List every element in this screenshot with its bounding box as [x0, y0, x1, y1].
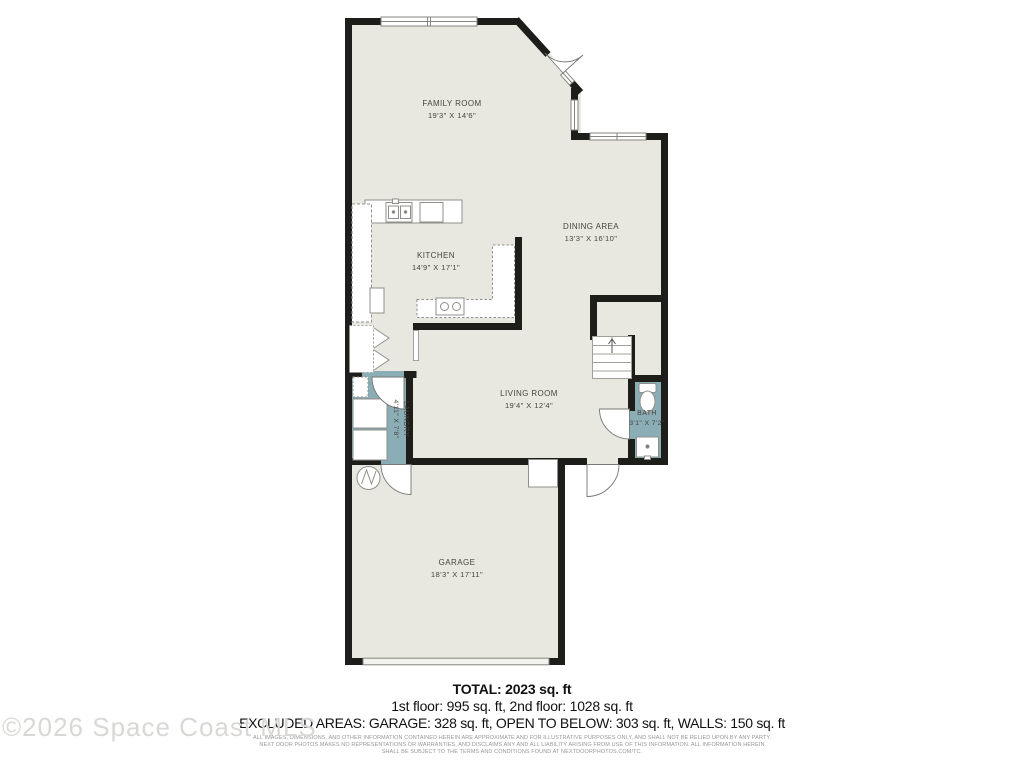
laundry-cabinet — [353, 377, 368, 397]
floor-plan-drawing: FAMILY ROOM 19'3" X 14'6" KITCHEN 14'9" … — [0, 0, 1024, 768]
refrigerator — [370, 288, 384, 313]
laundry-label: LAUNDRY — [402, 401, 409, 437]
dryer — [353, 430, 387, 460]
garage-label: GARAGE — [439, 558, 476, 567]
sink-dot-right — [404, 211, 406, 213]
hall-opening-marker — [414, 331, 419, 361]
washer — [353, 399, 387, 428]
bath-dims: 3'1" X 7'2" — [629, 420, 664, 427]
water-heater — [357, 467, 380, 490]
garage-entry-step — [529, 460, 558, 488]
laundry-dims: 4'11" X 7'8" — [392, 400, 399, 439]
dining-area-label: DINING AREA — [563, 222, 619, 231]
hall-closet — [350, 326, 374, 373]
living-room-dims: 19'4" X 12'4" — [505, 401, 553, 410]
stairs — [593, 337, 632, 379]
family-room-label: FAMILY ROOM — [422, 99, 481, 108]
mls-watermark: ©2026 Space Coast MLS — [2, 712, 317, 743]
kitchen-pantry-counter — [352, 204, 372, 322]
garage-door-band — [363, 658, 549, 665]
floor-plan-page: FAMILY ROOM 19'3" X 14'6" KITCHEN 14'9" … — [0, 0, 1024, 768]
bath-sink-nub — [645, 456, 651, 460]
kitchen-appliance — [420, 203, 443, 223]
kitchen-faucet — [393, 199, 399, 204]
disclaimer-line-2: NEXT DOOR PHOTOS MAKES NO REPRESENTATION… — [0, 742, 1024, 749]
family-room-dims: 19'3" X 14'6" — [428, 111, 476, 120]
toilet-bowl — [640, 391, 655, 412]
entry-door-swing — [587, 465, 619, 497]
bath-label: BATH — [637, 410, 657, 417]
bath-sink-drain — [646, 445, 649, 448]
kitchen-counter-top — [365, 200, 462, 223]
cooktop-burner-right — [453, 303, 461, 311]
living-room-label: LIVING ROOM — [500, 389, 558, 398]
disclaimer-line-3: SHALL BE SUBJECT TO THE TERMS AND CONDIT… — [0, 749, 1024, 756]
kitchen-label: KITCHEN — [417, 251, 455, 260]
kitchen-dims: 14'9" X 17'1" — [412, 263, 460, 272]
cooktop-burner-left — [441, 303, 449, 311]
total-area-text: TOTAL: 2023 sq. ft — [0, 681, 1024, 698]
sink-dot-left — [392, 211, 394, 213]
garage-dims: 18'3" X 17'11" — [431, 570, 483, 579]
dining-area-dims: 13'3" X 16'10" — [565, 234, 618, 243]
